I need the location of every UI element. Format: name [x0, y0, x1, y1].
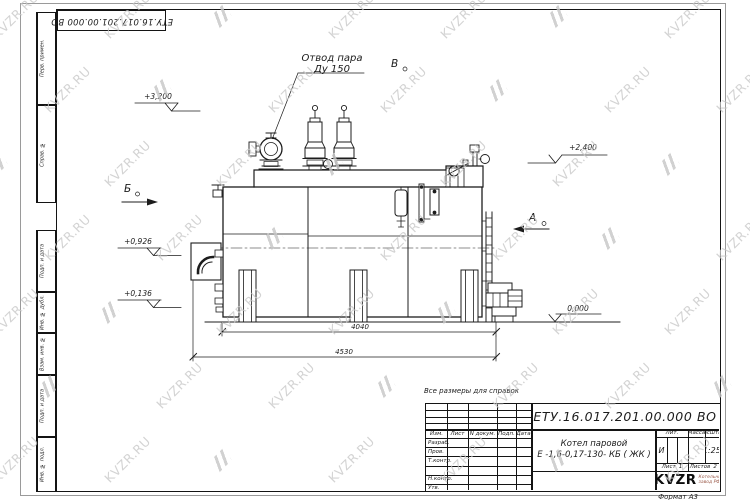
format-label: Формат А3	[633, 493, 723, 500]
product-name: Котел паровой Е -1,6-0,17-130- КБ ( ЖК )	[532, 429, 656, 471]
row-razrab: Разраб.	[426, 438, 468, 447]
steam-outlet-callout: Отвод пара Ду 150	[294, 53, 370, 75]
callout-line1: Отвод пара	[294, 53, 370, 64]
margin-label: Подп. и дата	[37, 376, 47, 436]
sheets-total: Листов 2	[688, 463, 719, 471]
col-list: Лист	[447, 429, 468, 438]
margin-label: Перв. примен.	[37, 13, 47, 104]
rotated-doc-number: ЕТУ.16.017.201.00.000 ВО	[51, 16, 173, 26]
sheets-value: 2	[713, 464, 717, 470]
margin-block-inv-dubl: Инв. № дубл.	[36, 292, 56, 333]
col-ndokum: N докум.	[468, 429, 497, 438]
margin-block-vzam-inv: Взам. инв. №	[36, 333, 56, 375]
sheet-value: 1	[679, 464, 683, 470]
reference-note: Все размеры для справок	[424, 387, 519, 395]
row-nkontr: Н.контр.	[426, 475, 468, 484]
product-name-line2: Е -1,6-0,17-130- КБ ( ЖК )	[537, 450, 651, 461]
company-logo: KVZR Котельный завод РФ	[656, 471, 719, 490]
title-block: Изм. Лист N докум. Подп. Дата Разраб. Пр…	[425, 403, 721, 492]
scale-value: 1:25	[705, 437, 719, 463]
mass-label: Масса	[688, 429, 705, 437]
elevation-0136: +0,136	[116, 289, 160, 298]
dimension-label-4040: 4040	[338, 323, 382, 331]
view-label-b: Б	[124, 183, 131, 195]
margin-label: Инв. № подл.	[37, 438, 47, 491]
sheet-label: Лист	[662, 464, 676, 470]
margin-label: Взам. инв. №	[37, 334, 47, 374]
col-izm: Изм.	[426, 429, 447, 438]
drawing-sheet: Перв. примен. Справ. № Подп. и дата Инв.…	[0, 0, 750, 500]
product-name-line1: Котел паровой	[561, 439, 628, 450]
col-data: Дата	[516, 429, 531, 438]
elevation-0000: 0,000	[556, 304, 600, 313]
margin-label: Инв. № дубл.	[37, 293, 47, 332]
kvzr-logo-text: KVZR	[656, 472, 697, 488]
row-empty	[426, 466, 468, 475]
lit-label: Лит.	[656, 429, 688, 437]
kvzr-logo-caption: Котельный завод РФ	[699, 475, 719, 485]
row-utv: Утв.	[426, 484, 468, 493]
title-block-doc-number: ЕТУ.16.017.201.00.000 ВО	[532, 404, 718, 429]
margin-label: Справ. №	[37, 106, 47, 202]
logo-caption-line2: завод РФ	[699, 480, 719, 485]
sheet-number: Лист 1	[656, 463, 688, 471]
col-podp: Подп.	[497, 429, 516, 438]
row-prov: Пров.	[426, 447, 468, 456]
elevation-2400: +2,400	[561, 143, 605, 152]
rotated-doc-number-stamp: ЕТУ.16.017.201.00.000 ВО	[57, 10, 166, 31]
elevation-0926: +0,926	[116, 237, 160, 246]
view-label-a: А	[529, 212, 536, 224]
lit-value: И	[656, 437, 667, 463]
elevation-3200: +3,200	[136, 92, 180, 101]
row-tkontr: Т.контр.	[426, 456, 468, 465]
dimension-label-4530: 4530	[322, 348, 366, 356]
margin-block-podp-data-1: Подп. и дата	[36, 230, 56, 292]
sheets-label: Листов	[690, 464, 711, 470]
scale-label: Масштаб	[705, 429, 719, 437]
margin-block-sprav-no: Справ. №	[36, 105, 56, 203]
view-label-v: В	[391, 58, 398, 70]
margin-block-inv-podl: Инв. № подл.	[36, 437, 56, 492]
margin-label: Подп. и дата	[37, 231, 47, 291]
margin-block-podp-data-2: Подп. и дата	[36, 375, 56, 437]
callout-line2: Ду 150	[294, 64, 370, 75]
